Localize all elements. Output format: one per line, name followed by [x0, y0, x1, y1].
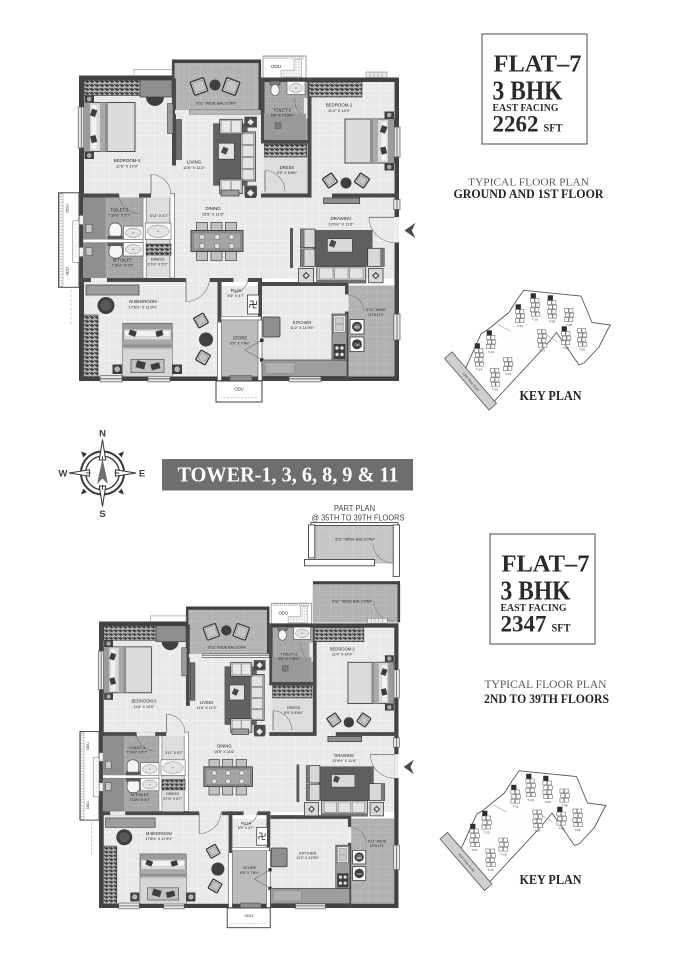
svg-text:ODU: ODU: [271, 64, 281, 69]
svg-text:3'11" X 5'7": 3'11" X 5'7": [165, 751, 184, 755]
svg-text:LIVING: LIVING: [200, 700, 213, 705]
svg-text:4'11" WIDE BALCONY: 4'11" WIDE BALCONY: [335, 537, 376, 542]
svg-text:WM: WM: [357, 856, 363, 860]
svg-text:TOWER-1, 3, 6, 8, 9 & 11: TOWER-1, 3, 6, 8, 9 & 11: [178, 463, 399, 487]
svg-text:DINING: DINING: [217, 744, 231, 749]
svg-text:DRESS: DRESS: [287, 705, 301, 710]
svg-text:GROUND AND 1ST FLOOR: GROUND AND 1ST FLOOR: [454, 187, 605, 201]
svg-text:7'10½" X 5'7": 7'10½" X 5'7": [129, 798, 151, 802]
svg-text:2ND TO 39TH FLOORS: 2ND TO 39TH FLOORS: [484, 692, 609, 706]
svg-text:BEDROOM-2: BEDROOM-2: [330, 647, 356, 652]
svg-text:KEY PLAN: KEY PLAN: [520, 389, 582, 404]
svg-text:17'6½" X 11'9½": 17'6½" X 11'9½": [145, 837, 173, 841]
svg-text:M.BEDROOM: M.BEDROOM: [129, 299, 157, 304]
svg-text:BEDROOM-3: BEDROOM-3: [114, 158, 141, 163]
svg-text:DRAWING: DRAWING: [330, 216, 352, 221]
svg-text:ODU: ODU: [86, 742, 90, 750]
svg-text:11'2" X 11'9½": 11'2" X 11'9½": [296, 856, 319, 860]
svg-text:3 BHK: 3 BHK: [501, 576, 571, 606]
svg-text:TOILET-3: TOILET-3: [110, 208, 129, 213]
svg-text:T-15: T-15: [505, 372, 511, 376]
svg-text:T-05: T-05: [574, 828, 580, 832]
svg-text:T-06: T-06: [558, 826, 564, 830]
svg-text:W: W: [59, 469, 68, 480]
svg-text:T-13: T-13: [483, 830, 489, 834]
svg-text:3 BHK: 3 BHK: [493, 76, 563, 106]
svg-text:ODU: ODU: [234, 387, 243, 392]
svg-text:PUJA: PUJA: [231, 288, 242, 293]
svg-text:T-07: T-07: [534, 829, 540, 833]
svg-text:T-05: T-05: [579, 348, 585, 352]
svg-text:5'9" X 6'6½": 5'9" X 6'6½": [284, 711, 304, 715]
svg-text:5'5" X 7'6½": 5'5" X 7'6½": [240, 871, 260, 875]
svg-text:E: E: [139, 469, 145, 480]
svg-text:SFT: SFT: [544, 123, 563, 135]
svg-text:T-11: T-11: [517, 324, 523, 328]
svg-text:N: N: [99, 429, 106, 440]
svg-text:5'5" X 7'10½": 5'5" X 7'10½": [278, 657, 300, 661]
svg-text:STORE: STORE: [243, 865, 257, 870]
svg-text:15'5" X 11'6": 15'5" X 11'6": [202, 212, 225, 217]
svg-text:DRAWING: DRAWING: [334, 753, 354, 758]
svg-text:ODU: ODU: [66, 204, 70, 213]
svg-text:13'6½" X 11'6": 13'6½" X 11'6": [332, 759, 357, 763]
svg-text:STORE: STORE: [233, 336, 248, 341]
svg-text:11'4" X 14'9": 11'4" X 14'9": [328, 108, 351, 113]
svg-text:UTILITY: UTILITY: [369, 312, 384, 317]
svg-text:7'10½" X 5'7": 7'10½" X 5'7": [108, 214, 131, 218]
svg-text:T-14: T-14: [471, 848, 477, 852]
svg-text:PUJA: PUJA: [241, 821, 251, 826]
svg-text:TOILET-2: TOILET-2: [273, 108, 292, 113]
svg-text:T-14: T-14: [476, 368, 482, 372]
svg-text:T-07: T-07: [539, 349, 545, 353]
svg-text:5'11" WIDE: 5'11" WIDE: [368, 839, 387, 843]
svg-text:M.TOILET: M.TOILET: [131, 792, 150, 797]
svg-text:@ 35TH TO 39TH FLOORS: @ 35TH TO 39TH FLOORS: [312, 514, 405, 523]
svg-text:KITCHEN: KITCHEN: [299, 851, 316, 856]
svg-text:ODU: ODU: [66, 267, 70, 276]
svg-text:3'11" X 5'7": 3'11" X 5'7": [150, 214, 170, 218]
svg-text:KEY PLAN: KEY PLAN: [520, 873, 582, 888]
svg-text:T-15: T-15: [500, 852, 506, 856]
svg-text:13'6½" X 11'6": 13'6½" X 11'6": [328, 222, 354, 227]
svg-text:T-11: T-11: [513, 804, 519, 808]
svg-text:DW: DW: [354, 343, 359, 347]
svg-text:T-13: T-13: [488, 350, 494, 354]
svg-text:BEDROOM-2: BEDROOM-2: [326, 103, 353, 108]
svg-text:T-08: T-08: [561, 803, 567, 807]
svg-text:FLAT–7: FLAT–7: [494, 52, 582, 78]
svg-text:SFT: SFT: [552, 623, 571, 635]
svg-text:T-10: T-10: [532, 318, 538, 322]
svg-text:LIVING: LIVING: [187, 160, 202, 165]
svg-text:WM: WM: [354, 326, 360, 330]
svg-text:11'2" X 11'9½": 11'2" X 11'9½": [290, 326, 315, 330]
svg-text:3'7½" X 5'7": 3'7½" X 5'7": [147, 263, 168, 267]
svg-text:2347: 2347: [501, 612, 547, 637]
svg-text:11'4" X 14'9": 11'4" X 14'9": [332, 653, 353, 657]
svg-text:17'6½" X 11'9½": 17'6½" X 11'9½": [129, 305, 159, 310]
svg-text:15'5" X 11'6": 15'5" X 11'6": [214, 750, 235, 754]
svg-text:5'11" WIDE BALCONY: 5'11" WIDE BALCONY: [208, 646, 246, 650]
svg-text:7'10½" X 5'7": 7'10½" X 5'7": [126, 751, 148, 755]
svg-text:T-06: T-06: [563, 346, 569, 350]
svg-text:DRESS: DRESS: [166, 792, 179, 796]
svg-text:KITCHEN: KITCHEN: [293, 320, 311, 325]
svg-text:DINING: DINING: [205, 206, 221, 211]
svg-text:ODU: ODU: [86, 801, 90, 809]
svg-text:T-09: T-09: [549, 320, 555, 324]
svg-text:7'10½" X 5'7": 7'10½" X 5'7": [111, 264, 134, 268]
svg-text:ODU: ODU: [279, 610, 289, 615]
svg-text:TOILET-2: TOILET-2: [281, 651, 298, 656]
svg-text:M.BEDROOM: M.BEDROOM: [146, 831, 172, 836]
svg-text:DRESS: DRESS: [280, 165, 295, 170]
svg-text:TOILET-3: TOILET-3: [128, 745, 146, 750]
svg-text:T-16: T-16: [487, 868, 493, 872]
svg-text:S: S: [99, 509, 105, 520]
svg-text:5'5" X 4'7": 5'5" X 4'7": [227, 294, 245, 298]
svg-text:11'6" X 11'2": 11'6" X 11'2": [183, 165, 206, 170]
svg-text:5'9" X 6'6½": 5'9" X 6'6½": [277, 171, 298, 175]
svg-text:DRESS: DRESS: [151, 257, 165, 262]
svg-text:5'11" WIDE BALCONY: 5'11" WIDE BALCONY: [196, 101, 237, 106]
svg-text:5'5" X 4'7": 5'5" X 4'7": [238, 826, 255, 830]
svg-text:11'6" X 11'2": 11'6" X 11'2": [196, 706, 217, 710]
svg-text:T-08: T-08: [566, 323, 572, 327]
svg-text:11'6" X 14'9": 11'6" X 14'9": [116, 164, 139, 169]
svg-text:M.TOILET: M.TOILET: [113, 258, 133, 263]
svg-text:DW: DW: [357, 872, 362, 876]
svg-text:TYPICAL FLOOR PLAN: TYPICAL FLOOR PLAN: [485, 679, 608, 691]
svg-text:4'11" WIDE BALCONY: 4'11" WIDE BALCONY: [332, 599, 373, 604]
svg-text:3'7½" X 5'7": 3'7½" X 5'7": [163, 797, 183, 801]
svg-text:ODU: ODU: [244, 913, 253, 918]
svg-text:UTILITY: UTILITY: [370, 844, 384, 848]
svg-text:5'5" X 7'10½": 5'5" X 7'10½": [271, 114, 294, 118]
svg-text:2262: 2262: [493, 112, 539, 137]
svg-text:T-09: T-09: [544, 800, 550, 804]
svg-text:11'6" X 14'9": 11'6" X 14'9": [134, 705, 155, 709]
svg-text:5'5" X 7'6½": 5'5" X 7'6½": [230, 342, 251, 346]
svg-text:T-16: T-16: [492, 388, 498, 392]
svg-text:FLAT–7: FLAT–7: [502, 552, 590, 578]
svg-text:BEDROOM-3: BEDROOM-3: [131, 699, 157, 704]
svg-text:T-10: T-10: [527, 798, 533, 802]
svg-text:PART PLAN: PART PLAN: [334, 504, 375, 513]
